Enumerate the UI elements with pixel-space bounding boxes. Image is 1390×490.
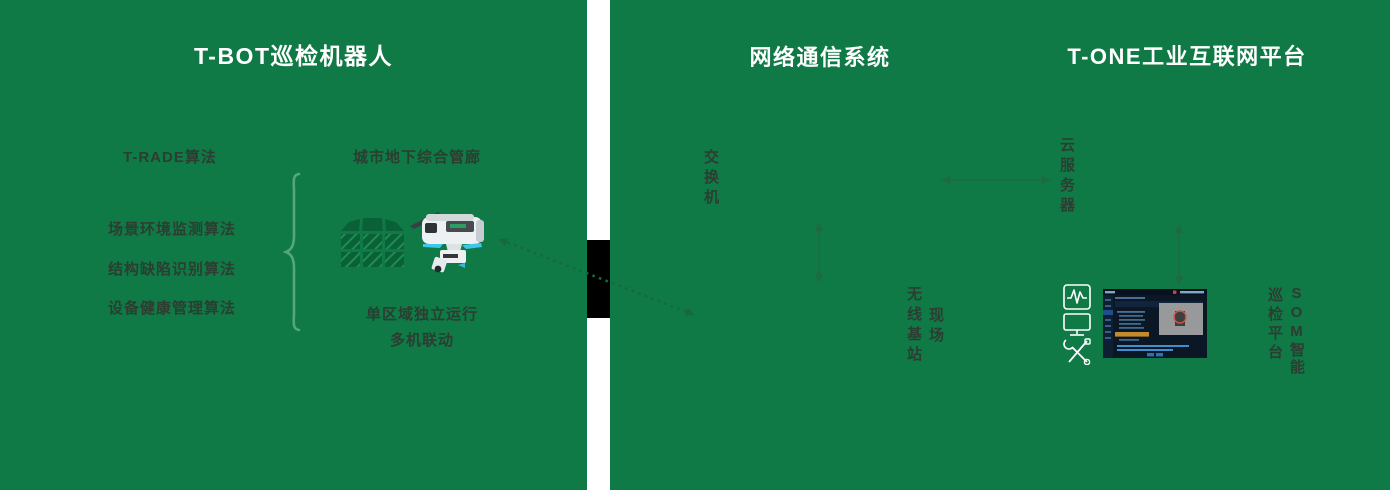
- cloud-server-label: 云服务器: [1058, 137, 1075, 217]
- gap-connector-block: [587, 240, 610, 318]
- curly-brace-icon: [283, 172, 301, 332]
- algorithm-group-header: T-RADE算法: [123, 146, 217, 167]
- som-platform-label-right: SOM智能: [1288, 285, 1305, 376]
- field-station-label-left: 无线基站: [905, 286, 922, 366]
- crossed-tools-icon: [1062, 337, 1092, 365]
- field-station-label-right: 现场: [927, 307, 944, 347]
- display-monitor-icon: [1062, 313, 1092, 337]
- platform-title: T-ONE工业互联网平台: [1067, 39, 1306, 71]
- scene-title: 城市地下综合管廊: [353, 146, 481, 167]
- right-panel-background: [610, 0, 1390, 490]
- switch-label: 交换机: [702, 149, 719, 209]
- som-platform-screenshot: [1103, 289, 1207, 358]
- left-panel-title: T-BOT巡检机器人: [0, 37, 587, 71]
- algorithm-item-1: 场景环境监测算法: [108, 218, 236, 239]
- algorithm-item-2: 结构缺陷识别算法: [108, 258, 236, 279]
- architecture-diagram: T-BOT巡检机器人 网络通信系统 T-ONE工业互联网平台 T-RADE算法 …: [0, 0, 1390, 490]
- scene-caption-2: 多机联动: [330, 329, 514, 350]
- scene-caption-1: 单区域独立运行: [330, 303, 514, 324]
- utility-tunnel-grid-icon: [339, 216, 406, 268]
- network-system-title: 网络通信系统: [749, 40, 890, 72]
- monitor-waveform-icon: [1062, 283, 1092, 311]
- som-platform-label-left: 巡检平台: [1266, 287, 1283, 363]
- algorithm-item-3: 设备健康管理算法: [108, 297, 236, 318]
- rail-inspection-robot-icon: [410, 208, 494, 278]
